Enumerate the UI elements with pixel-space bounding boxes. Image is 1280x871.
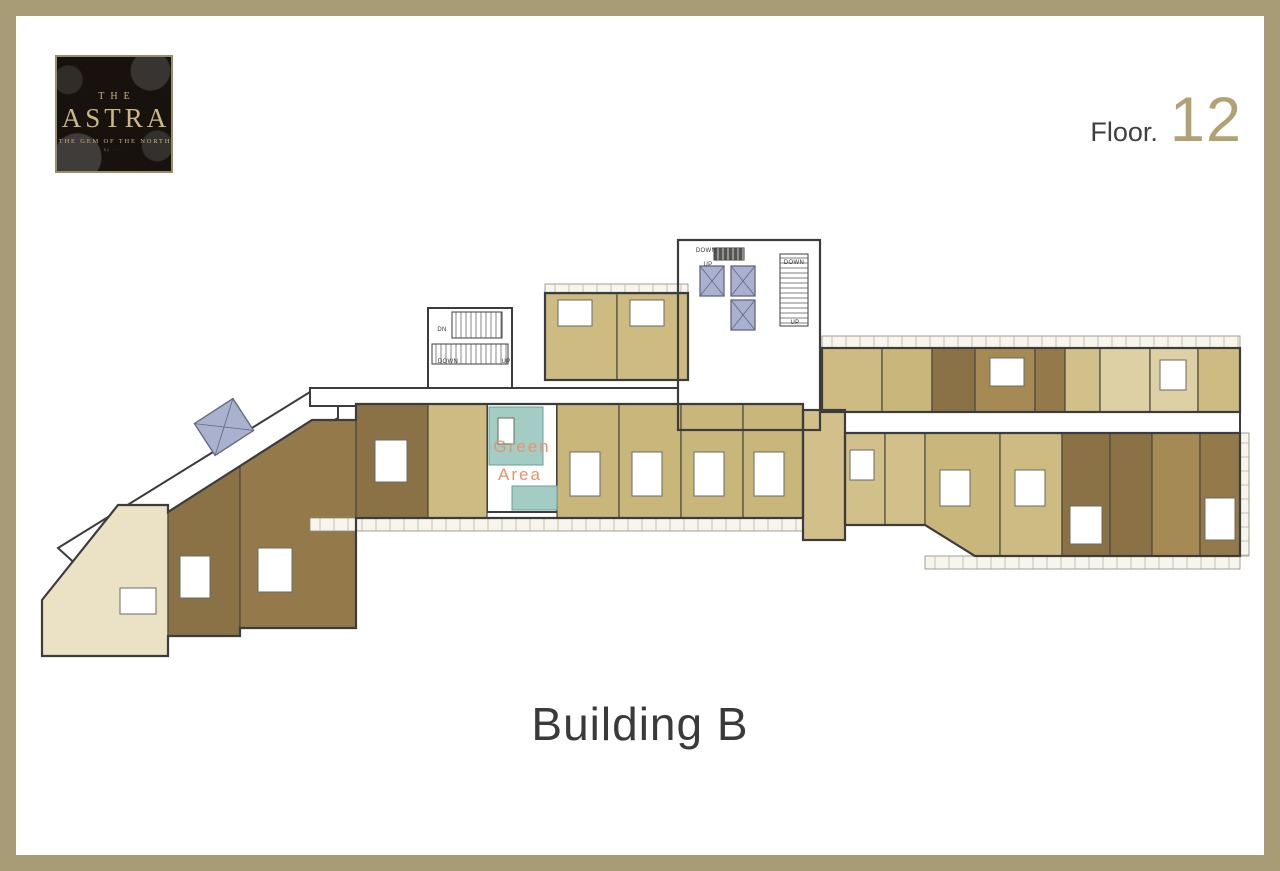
green-area-patio	[489, 407, 543, 465]
stair	[452, 312, 502, 338]
furniture	[754, 452, 784, 496]
furniture	[180, 556, 210, 598]
plan-label: DOWN	[784, 260, 804, 266]
balcony	[925, 556, 1240, 569]
unit	[1198, 348, 1240, 412]
logo-tagline: THE GEM OF THE NORTH	[57, 138, 171, 145]
logo-subtagline: by ·····	[104, 147, 124, 152]
furniture	[570, 452, 600, 496]
unit	[1110, 433, 1152, 556]
unit	[42, 505, 168, 656]
plan-label: Green	[493, 437, 550, 456]
unit	[1035, 348, 1065, 412]
furniture	[850, 450, 874, 480]
astra-logo: THE ASTRA THE GEM OF THE NORTH by ·····	[55, 55, 173, 173]
balcony	[822, 336, 1240, 348]
plan-label: DOWN	[696, 248, 716, 254]
logo-the: THE	[92, 91, 135, 102]
furniture	[558, 300, 592, 326]
furniture	[630, 300, 664, 326]
furniture	[1205, 498, 1235, 540]
unit	[1152, 433, 1200, 556]
unit	[885, 433, 925, 525]
plan-label: UP	[791, 320, 800, 326]
furniture	[990, 358, 1024, 386]
furniture	[258, 548, 292, 592]
floor-number: 12	[1170, 84, 1242, 156]
floor-prefix: Floor.	[1090, 117, 1158, 148]
furniture	[120, 588, 156, 614]
plan-label: Area	[498, 465, 542, 484]
furniture	[1015, 470, 1045, 506]
unit	[882, 348, 932, 412]
plan-label: UP	[704, 262, 713, 268]
balcony	[1240, 433, 1249, 556]
stair	[714, 248, 744, 260]
furniture	[632, 452, 662, 496]
corridor	[845, 412, 1240, 433]
plan-label: DN	[437, 327, 446, 333]
green-area-patio	[512, 486, 557, 510]
unit	[932, 348, 975, 412]
plan-label: DOWN	[438, 359, 458, 365]
logo-astra: ASTRA	[58, 103, 171, 134]
furniture	[1160, 360, 1186, 390]
furniture	[375, 440, 407, 482]
unit	[822, 348, 882, 412]
unit	[428, 404, 487, 518]
balcony	[310, 518, 803, 531]
building-label: Building B	[0, 697, 1280, 751]
unit	[1100, 348, 1150, 412]
furniture	[694, 452, 724, 496]
floor-label: Floor. 12	[1090, 84, 1242, 156]
furniture	[940, 470, 970, 506]
furniture	[1070, 506, 1102, 544]
plan-label: UP	[502, 359, 511, 365]
unit	[1065, 348, 1100, 412]
